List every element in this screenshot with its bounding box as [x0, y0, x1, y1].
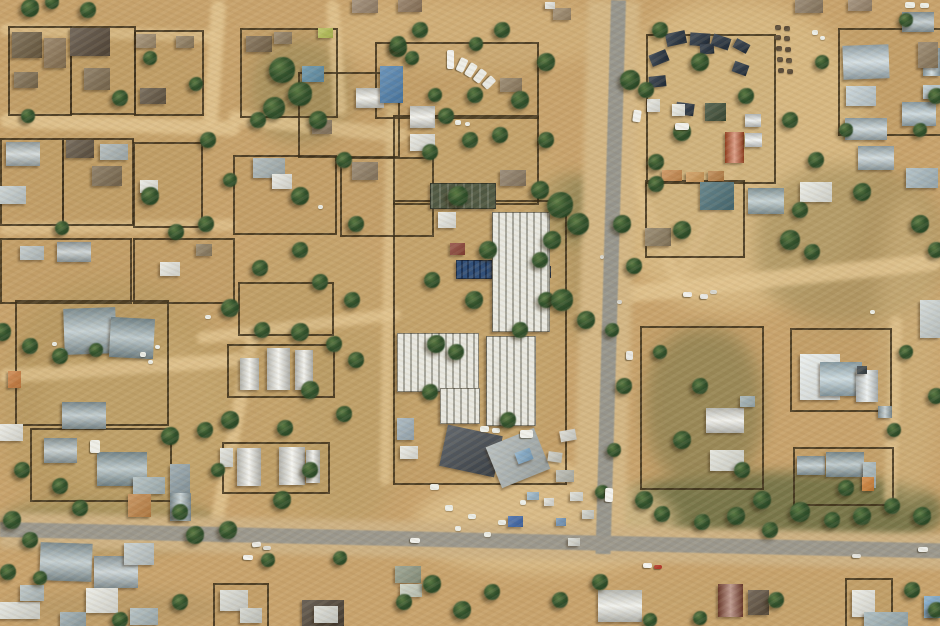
tree — [427, 335, 445, 353]
building — [160, 262, 180, 276]
tree — [928, 242, 940, 258]
building — [748, 188, 784, 214]
tree — [219, 521, 237, 539]
building — [705, 103, 726, 121]
building — [176, 36, 194, 48]
tree — [301, 381, 319, 399]
tree — [0, 323, 11, 341]
building — [314, 606, 338, 623]
tree — [913, 123, 927, 137]
building — [556, 518, 566, 526]
tree — [172, 594, 188, 610]
tree — [577, 311, 595, 329]
tree — [815, 55, 829, 69]
debris — [318, 205, 323, 209]
tree — [277, 420, 293, 436]
tree — [804, 244, 820, 260]
debris — [778, 68, 784, 73]
building — [410, 106, 435, 128]
building — [686, 172, 704, 182]
building — [44, 38, 66, 68]
building — [20, 246, 44, 260]
building — [547, 451, 562, 463]
tree — [221, 299, 239, 317]
tree — [326, 336, 342, 352]
building — [748, 590, 769, 615]
debris — [777, 57, 783, 62]
debris — [920, 3, 929, 8]
tree — [390, 36, 406, 52]
tree — [911, 215, 929, 233]
tree — [80, 2, 96, 18]
debris — [710, 290, 717, 294]
tree — [55, 221, 69, 235]
tree — [22, 338, 38, 354]
building — [8, 371, 21, 388]
tree — [512, 322, 528, 338]
tree — [500, 412, 516, 428]
tree — [691, 53, 709, 71]
building — [66, 140, 94, 158]
tree — [302, 462, 318, 478]
debris — [455, 526, 461, 531]
debris — [445, 505, 453, 511]
building — [858, 146, 894, 170]
tree — [200, 132, 216, 148]
tree — [654, 506, 670, 522]
building — [267, 348, 290, 390]
building — [272, 174, 292, 189]
building — [864, 612, 908, 626]
tree — [808, 152, 824, 168]
vehicle — [852, 554, 861, 558]
tree — [613, 215, 631, 233]
debris — [785, 47, 791, 52]
building — [797, 456, 825, 475]
building — [440, 388, 480, 424]
tree — [899, 13, 913, 27]
tree — [269, 57, 295, 83]
tree — [692, 378, 708, 394]
debris — [786, 58, 792, 63]
debris — [784, 36, 790, 41]
debris — [468, 514, 476, 519]
debris — [784, 26, 790, 31]
tree — [161, 427, 179, 445]
building — [84, 68, 110, 90]
building — [39, 542, 92, 582]
vehicle — [632, 110, 642, 123]
vehicle — [447, 50, 454, 69]
building — [856, 370, 878, 402]
tree — [792, 202, 808, 218]
vehicle — [918, 547, 928, 552]
tree — [673, 431, 691, 449]
tree — [531, 181, 549, 199]
building — [302, 66, 324, 82]
building — [274, 32, 292, 44]
tree — [333, 551, 347, 565]
building — [862, 477, 874, 491]
vehicle — [252, 542, 261, 548]
building — [196, 244, 212, 256]
tree — [288, 82, 312, 106]
building — [237, 448, 261, 486]
tree — [422, 144, 438, 160]
building — [559, 429, 577, 443]
building — [128, 494, 151, 517]
building — [718, 584, 743, 617]
debris — [430, 484, 439, 490]
building — [568, 538, 580, 546]
building — [826, 452, 864, 477]
building — [279, 447, 305, 485]
building — [745, 133, 762, 147]
tree — [423, 575, 441, 593]
vehicle — [90, 440, 100, 453]
building — [398, 0, 422, 12]
building — [92, 166, 122, 186]
building — [450, 243, 465, 255]
tree — [422, 384, 438, 400]
tree — [638, 82, 654, 98]
building — [672, 104, 685, 116]
tree — [928, 602, 940, 618]
compound-wall — [238, 282, 334, 336]
tree — [453, 601, 471, 619]
building — [725, 132, 744, 163]
tree — [291, 323, 309, 341]
debris — [155, 345, 160, 349]
tree — [141, 187, 159, 205]
building — [57, 242, 91, 262]
tree — [312, 274, 328, 290]
building — [140, 88, 166, 104]
building — [0, 602, 40, 619]
tree — [396, 594, 412, 610]
debris — [52, 342, 57, 346]
debris — [775, 35, 781, 40]
building — [492, 212, 550, 332]
tree — [904, 582, 920, 598]
building — [130, 608, 158, 625]
building — [438, 212, 456, 228]
tree — [309, 111, 327, 129]
building — [708, 171, 724, 181]
building — [12, 32, 42, 58]
debris — [600, 255, 604, 259]
vehicle — [243, 555, 253, 560]
tree — [694, 514, 710, 530]
building — [400, 446, 418, 459]
tree — [336, 406, 352, 422]
vehicle — [263, 546, 271, 550]
debris — [870, 310, 875, 314]
tree — [0, 564, 16, 580]
building — [645, 228, 671, 246]
tree — [734, 462, 750, 478]
building — [395, 566, 421, 583]
tree — [250, 112, 266, 128]
tree — [469, 37, 483, 51]
tree — [186, 526, 204, 544]
tree — [620, 70, 640, 90]
building — [598, 590, 642, 622]
tree — [45, 0, 59, 9]
tree — [552, 592, 568, 608]
tree — [928, 388, 940, 404]
tree — [424, 272, 440, 288]
debris — [455, 120, 461, 125]
tree — [551, 289, 573, 311]
debris — [498, 520, 506, 525]
tree — [824, 512, 840, 528]
tree — [189, 77, 203, 91]
compound-wall — [233, 155, 337, 235]
building — [109, 317, 155, 359]
tree — [263, 97, 285, 119]
tree — [616, 378, 632, 394]
building — [570, 492, 583, 501]
tree — [853, 183, 871, 201]
building — [544, 498, 554, 506]
debris — [148, 360, 153, 364]
debris — [140, 352, 146, 357]
building — [582, 510, 594, 519]
tree — [52, 348, 68, 364]
tree — [768, 592, 784, 608]
tree — [448, 186, 468, 206]
tree — [261, 553, 275, 567]
tree — [839, 123, 853, 137]
tree — [14, 462, 30, 478]
tree — [511, 91, 529, 109]
tree — [838, 480, 854, 496]
debris — [812, 30, 818, 35]
building — [800, 182, 832, 202]
building — [133, 477, 165, 494]
building — [246, 36, 272, 52]
building — [500, 170, 526, 186]
tree — [428, 88, 442, 102]
tree — [172, 504, 188, 520]
building — [124, 543, 154, 565]
tree — [252, 260, 268, 276]
tree — [344, 292, 360, 308]
tree — [607, 443, 621, 457]
building — [556, 470, 574, 482]
vehicle — [683, 292, 692, 297]
tree — [112, 612, 128, 626]
building — [878, 406, 892, 418]
tree — [484, 584, 500, 600]
building — [846, 86, 876, 106]
building — [842, 44, 889, 80]
debris — [776, 46, 782, 51]
debris — [205, 315, 211, 319]
building — [553, 8, 571, 20]
tree — [648, 176, 664, 192]
vehicle — [643, 563, 652, 568]
tree — [254, 322, 270, 338]
tree — [853, 507, 871, 525]
vehicle — [626, 351, 633, 360]
vehicle — [700, 294, 708, 299]
tree — [635, 491, 653, 509]
building — [397, 418, 414, 440]
compound-wall — [133, 238, 235, 304]
tree — [291, 187, 309, 205]
tree — [89, 343, 103, 357]
tree — [913, 507, 931, 525]
tree — [292, 242, 308, 258]
tree — [465, 291, 483, 309]
tree — [348, 352, 364, 368]
tree — [462, 132, 478, 148]
tree — [405, 51, 419, 65]
building — [170, 464, 190, 493]
building — [857, 366, 867, 374]
vehicle — [675, 123, 689, 130]
tree — [211, 463, 225, 477]
debris — [484, 532, 491, 537]
building — [60, 612, 86, 626]
debris — [465, 122, 470, 126]
tree — [273, 491, 291, 509]
building — [14, 72, 38, 88]
tree — [198, 216, 214, 232]
tree — [738, 88, 754, 104]
debris — [787, 69, 793, 74]
building — [318, 28, 333, 38]
tree — [438, 108, 454, 124]
debris — [820, 36, 825, 40]
building — [906, 168, 938, 188]
building — [0, 186, 26, 204]
tree — [336, 152, 352, 168]
building — [740, 396, 755, 407]
tree — [221, 411, 239, 429]
debris — [617, 300, 622, 304]
tree — [605, 323, 619, 337]
tree — [899, 345, 913, 359]
tree — [143, 51, 157, 65]
building — [100, 144, 128, 160]
building — [20, 585, 44, 601]
tree — [21, 109, 35, 123]
tree — [547, 192, 573, 218]
building — [508, 516, 523, 527]
tree — [492, 127, 508, 143]
tree — [762, 522, 778, 538]
building — [136, 34, 156, 48]
building — [240, 608, 262, 623]
vehicle — [410, 538, 420, 544]
tree — [412, 22, 428, 38]
tree — [653, 345, 667, 359]
tree — [567, 213, 589, 235]
building — [848, 0, 872, 11]
tree — [532, 252, 548, 268]
tree — [592, 574, 608, 590]
debris — [480, 426, 489, 432]
building — [380, 66, 403, 103]
tree — [467, 87, 483, 103]
building — [527, 492, 539, 500]
building — [918, 42, 938, 68]
building — [706, 408, 744, 433]
building — [745, 114, 761, 127]
vehicle — [654, 565, 662, 569]
debris — [520, 500, 526, 505]
tree — [223, 173, 237, 187]
tree — [652, 22, 668, 38]
tree — [790, 502, 810, 522]
satellite-map — [0, 0, 940, 626]
tree — [538, 132, 554, 148]
building — [86, 588, 118, 613]
tree — [52, 478, 68, 494]
tree — [727, 507, 745, 525]
tree — [648, 154, 664, 170]
building — [44, 438, 77, 463]
debris — [492, 428, 500, 433]
building — [0, 424, 23, 441]
tree — [33, 571, 47, 585]
vehicle — [520, 430, 533, 438]
tree — [884, 498, 900, 514]
tree — [543, 231, 561, 249]
tree — [782, 112, 798, 128]
debris — [775, 25, 781, 30]
tree — [21, 0, 39, 17]
building — [920, 300, 940, 338]
tree — [693, 611, 707, 625]
building — [700, 182, 734, 210]
tree — [348, 216, 364, 232]
tree — [72, 500, 88, 516]
tree — [753, 491, 771, 509]
building — [647, 99, 660, 112]
building — [70, 28, 110, 56]
building — [6, 142, 40, 166]
tree — [494, 22, 510, 38]
tree — [537, 53, 555, 71]
tree — [479, 241, 497, 259]
tree — [112, 90, 128, 106]
tree — [928, 88, 940, 104]
tree — [673, 221, 691, 239]
tree — [643, 613, 657, 626]
building — [795, 0, 823, 13]
building — [352, 0, 378, 13]
vehicle — [605, 488, 613, 502]
building — [352, 162, 378, 180]
tree — [626, 258, 642, 274]
building — [240, 358, 259, 390]
building — [662, 170, 682, 181]
debris — [905, 2, 915, 8]
tree — [168, 224, 184, 240]
building — [500, 78, 522, 92]
tree — [3, 511, 21, 529]
tree — [448, 344, 464, 360]
building — [62, 402, 106, 429]
tree — [22, 532, 38, 548]
building — [545, 2, 555, 9]
tree — [887, 423, 901, 437]
tree — [197, 422, 213, 438]
